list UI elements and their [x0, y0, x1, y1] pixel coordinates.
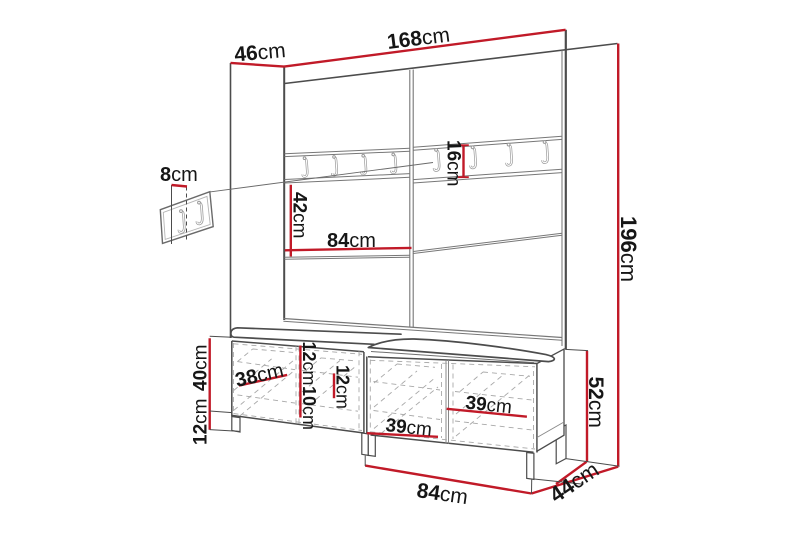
- svg-text:40cm: 40cm: [191, 345, 212, 391]
- svg-text:84cm: 84cm: [327, 230, 376, 252]
- svg-text:12cm: 12cm: [299, 342, 319, 386]
- svg-text:10cm: 10cm: [299, 386, 319, 430]
- svg-text:52cm: 52cm: [584, 377, 607, 428]
- svg-text:8cm: 8cm: [160, 164, 198, 186]
- svg-text:46cm: 46cm: [233, 39, 286, 66]
- svg-text:196cm: 196cm: [616, 216, 641, 282]
- svg-text:12cm: 12cm: [191, 399, 212, 445]
- svg-text:12cm: 12cm: [333, 365, 353, 409]
- svg-text:16cm: 16cm: [443, 140, 464, 186]
- svg-text:42cm: 42cm: [289, 192, 310, 238]
